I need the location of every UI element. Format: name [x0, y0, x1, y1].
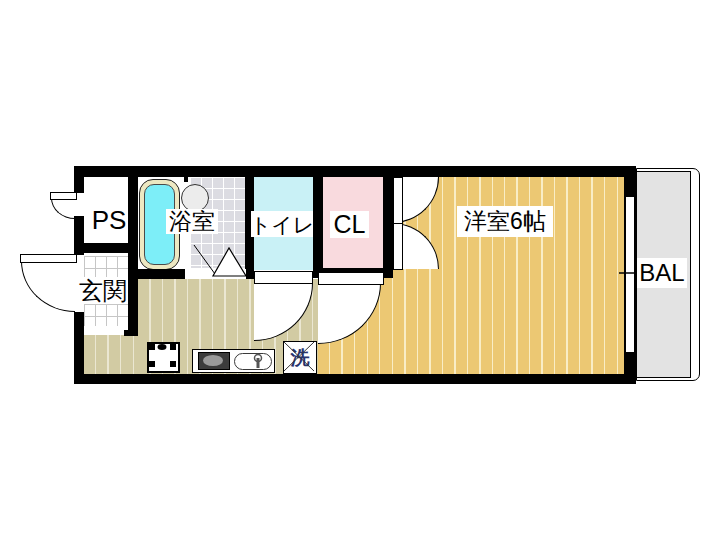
western-room-label: 洋室6帖 — [457, 206, 553, 237]
closet-door-top-leaf — [393, 177, 403, 224]
balcony-label: BAL — [637, 258, 687, 288]
balcony-window — [626, 197, 634, 352]
entrance-label: 玄関 — [78, 277, 128, 304]
bathroom-door-opening — [185, 269, 246, 279]
toilet-door-leaf — [254, 271, 313, 284]
wall-below-bathroom — [138, 269, 187, 279]
kitchen-floor-by-entrance — [84, 335, 138, 374]
stove-burner-icon — [203, 355, 223, 366]
entrance-door-leaf — [20, 254, 77, 263]
wall-top — [74, 166, 636, 177]
wall-below-ps — [84, 243, 138, 253]
washing-machine-label: 洗 — [284, 342, 316, 373]
room-door-leaf — [318, 272, 384, 285]
ps-door-swing — [51, 198, 75, 219]
bathroom-label: 浴室 — [166, 209, 218, 234]
entrance-door-swing — [21, 261, 75, 312]
appliance-space-icon — [147, 342, 180, 373]
ps-door-leaf — [50, 192, 77, 200]
wall-bottom — [74, 374, 636, 384]
wall-closet-room — [383, 166, 393, 268]
wall-toilet-closet — [313, 166, 323, 278]
ps-label: PS — [90, 206, 128, 234]
floor-plan: 洗 PS 玄関 浴室 トイレ CL 洋室6帖 BAL — [0, 0, 710, 550]
kitchen-sink-icon — [234, 353, 272, 370]
washing-machine-space: 洗 — [283, 341, 317, 374]
wall-entrance-step — [124, 330, 138, 336]
closet-door-bottom-leaf — [393, 223, 403, 270]
closet-label: CL — [330, 211, 369, 238]
toilet-label: トイレ — [251, 211, 313, 237]
